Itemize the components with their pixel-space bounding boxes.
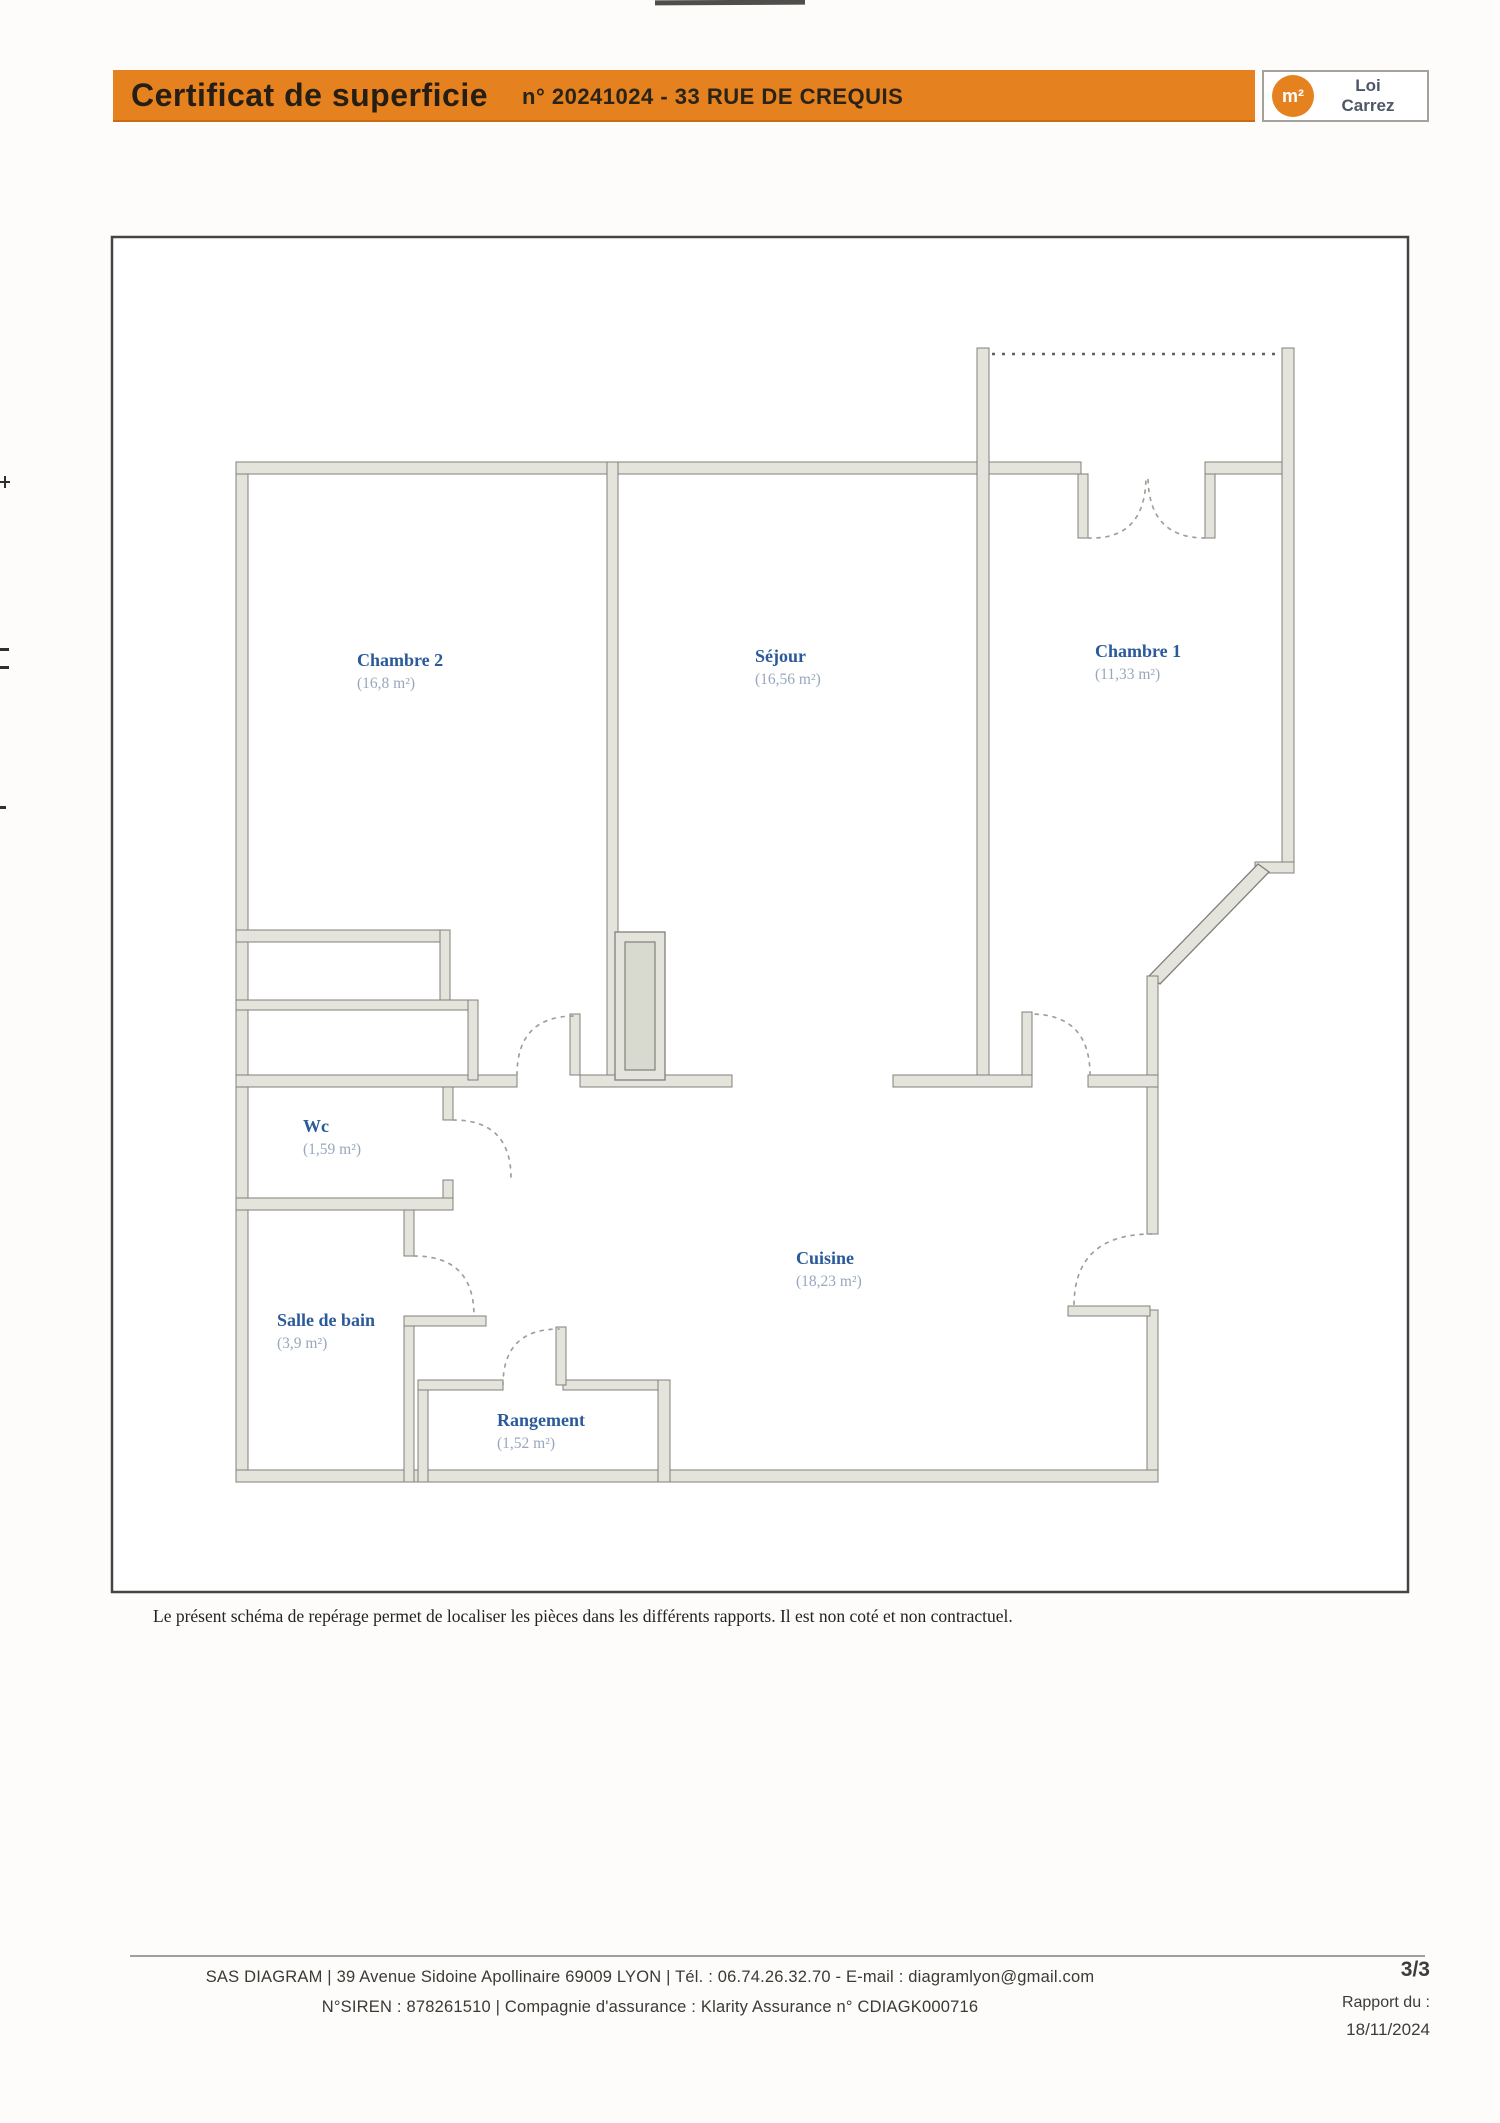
room-label-cuisine: Cuisine (18,23 m²)	[796, 1248, 862, 1291]
footer-company-info: SAS DIAGRAM | 39 Avenue Sidoine Apollina…	[80, 1963, 1220, 2022]
room-label-chambre1: Chambre 1 (11,33 m²)	[1095, 641, 1181, 684]
footer-line2: N°SIREN : 878261510 | Compagnie d'assura…	[80, 1993, 1220, 2023]
page-number: 3/3	[1300, 1958, 1430, 1982]
room-label-salle-de-bain: Salle de bain (3,9 m²)	[277, 1310, 375, 1353]
report-date-label: Rapport du :	[1300, 1994, 1430, 2012]
plan-caption: Le présent schéma de repérage permet de …	[153, 1606, 1373, 1627]
footer-divider	[130, 1955, 1425, 1957]
footer-page-info: 3/3 Rapport du : 18/11/2024	[1300, 1958, 1430, 2040]
floor-plan	[0, 0, 1500, 2123]
room-label-chambre2: Chambre 2 (16,8 m²)	[357, 650, 443, 693]
footer-line1: SAS DIAGRAM | 39 Avenue Sidoine Apollina…	[80, 1963, 1220, 1993]
room-label-sejour: Séjour (16,56 m²)	[755, 646, 821, 689]
column	[615, 932, 665, 1080]
document-page: { "header": { "title": "Certificat de su…	[0, 0, 1500, 2123]
room-label-wc: Wc (1,59 m²)	[303, 1116, 361, 1159]
report-date: 18/11/2024	[1300, 2020, 1430, 2040]
room-label-rangement: Rangement (1,52 m²)	[497, 1410, 585, 1453]
